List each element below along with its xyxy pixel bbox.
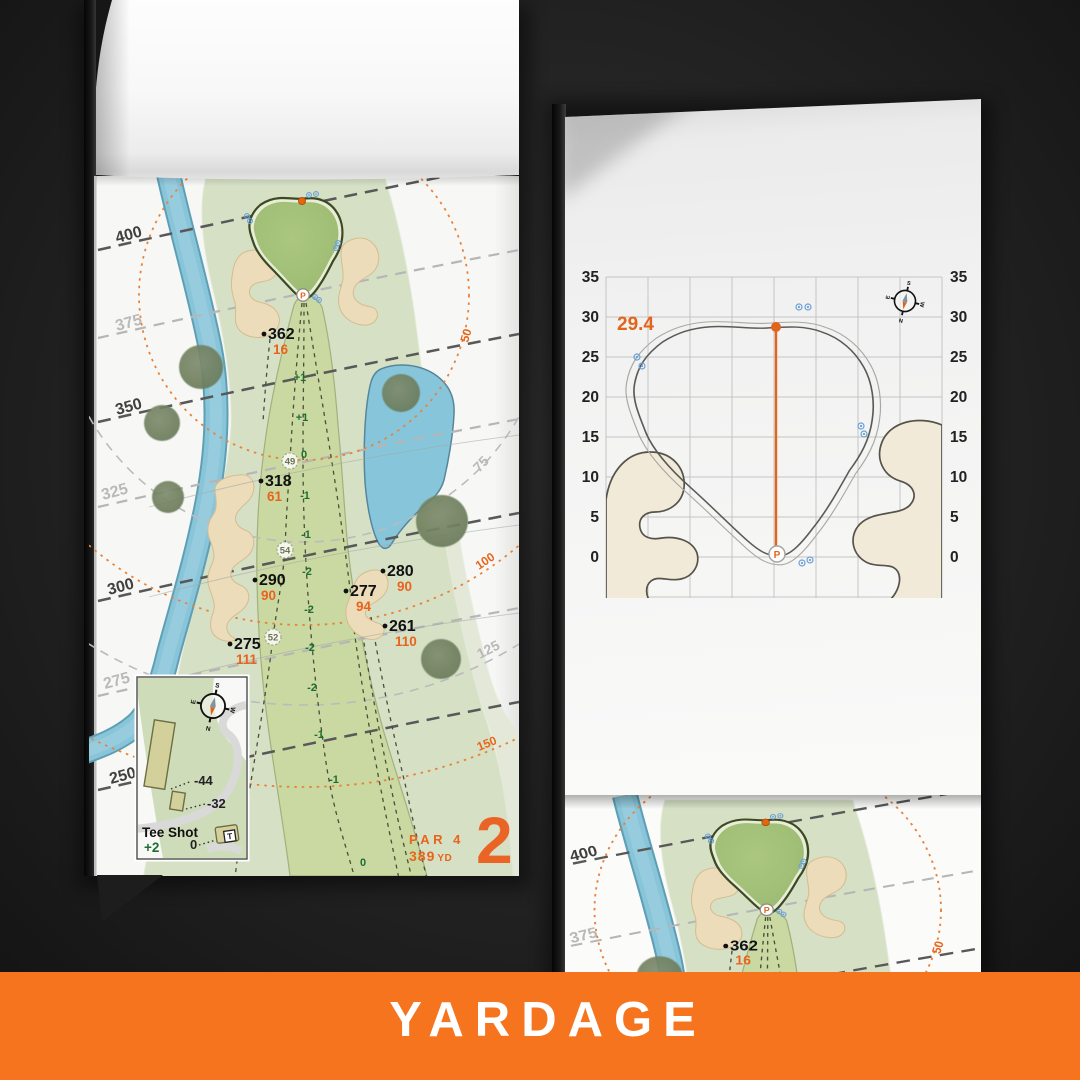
svg-text:35: 35 bbox=[950, 269, 968, 286]
svg-text:-44: -44 bbox=[194, 773, 214, 788]
svg-text:29.4: 29.4 bbox=[617, 314, 654, 335]
svg-text:5: 5 bbox=[590, 509, 599, 526]
svg-text:0: 0 bbox=[590, 549, 599, 566]
svg-text:20: 20 bbox=[950, 389, 967, 406]
svg-text:+2: +2 bbox=[144, 840, 159, 855]
svg-text:25: 25 bbox=[582, 349, 600, 366]
svg-text:30: 30 bbox=[950, 309, 967, 326]
svg-text:10: 10 bbox=[950, 469, 967, 486]
svg-text:2: 2 bbox=[476, 803, 513, 877]
svg-text:P: P bbox=[774, 550, 781, 561]
svg-text:10: 10 bbox=[582, 469, 599, 486]
svg-text:25: 25 bbox=[950, 349, 968, 366]
svg-text:-32: -32 bbox=[207, 796, 226, 811]
svg-text:0: 0 bbox=[190, 837, 197, 852]
svg-text:PAR 4: PAR 4 bbox=[409, 832, 464, 847]
svg-text:5: 5 bbox=[950, 509, 959, 526]
svg-text:YARDAGE: YARDAGE bbox=[389, 993, 707, 1047]
svg-text:35: 35 bbox=[582, 269, 600, 286]
svg-text:15: 15 bbox=[950, 429, 968, 446]
svg-text:30: 30 bbox=[582, 309, 599, 326]
svg-text:15: 15 bbox=[582, 429, 600, 446]
svg-text:20: 20 bbox=[582, 389, 599, 406]
svg-text:0: 0 bbox=[950, 549, 959, 566]
